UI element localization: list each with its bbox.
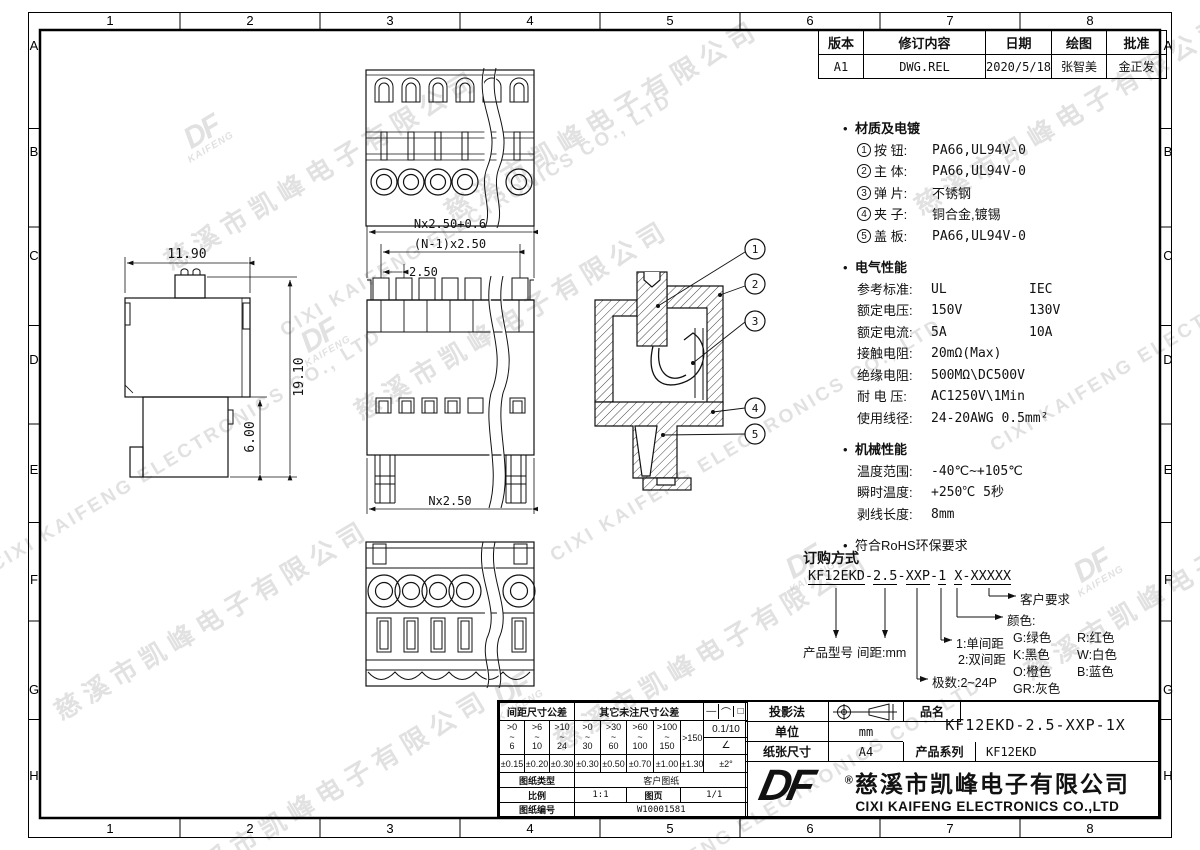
sheet-value: 1/1 bbox=[681, 788, 748, 803]
tol-symbols-cell: — ⌒ □ bbox=[704, 703, 748, 721]
grid-col-label: 7 bbox=[940, 821, 960, 836]
material-item: 1按 钮:PA66,UL94V-0 bbox=[843, 140, 1161, 162]
spec-value2: IEC bbox=[1029, 279, 1052, 301]
unit-label: 单位 bbox=[745, 722, 828, 742]
grid-col-label: 6 bbox=[800, 13, 820, 28]
spec-value: +250℃ 5秒 bbox=[931, 482, 1004, 504]
grid-col-label: 2 bbox=[240, 13, 260, 28]
mechanical-row: 剥线长度:8mm bbox=[843, 504, 1161, 526]
flatness-symbol: — bbox=[704, 706, 718, 717]
spec-label: 温度范围: bbox=[857, 461, 931, 483]
drawing-number-value: W10001581 bbox=[575, 803, 748, 817]
grid-row-label: B bbox=[24, 144, 44, 159]
electrical-row: 使用线径:24-20AWG 0.5mm² bbox=[843, 408, 1161, 430]
mechanical-section: •机械性能 温度范围:-40℃~+105℃ 瞬时温度:+250℃ 5秒 剥线长度… bbox=[843, 439, 1161, 525]
grid-row-label: E bbox=[24, 462, 44, 477]
material-value: PA66,UL94V-0 bbox=[932, 226, 1026, 248]
bullet: • bbox=[843, 257, 855, 279]
dim-pitch: 2.50 bbox=[409, 265, 438, 279]
flatness-value: 0.1/10 bbox=[704, 722, 747, 738]
material-label: 弹 片: bbox=[874, 183, 932, 205]
grid-col-label: 4 bbox=[520, 13, 540, 28]
ordering-section: 订购方式 KF12EKD-2.5-XXP-1X-XXXXX 产品型号 间距:mm… bbox=[795, 548, 1155, 698]
tol-value: ±0.70 bbox=[627, 755, 654, 773]
electrical-row: 绝缘电阻:500MΩ\DC500V bbox=[843, 365, 1161, 387]
projection-symbol-cell bbox=[828, 702, 903, 722]
spec-value: 24-20AWG 0.5mm² bbox=[931, 408, 1048, 430]
material-item: 4夹 子:铜合金,镀锡 bbox=[843, 204, 1161, 226]
spec-notes: •材质及电镀 1按 钮:PA66,UL94V-0 2主 体:PA66,UL94V… bbox=[843, 118, 1161, 567]
grid-col-label: 8 bbox=[1080, 821, 1100, 836]
tol-range: >10 ~ 24 bbox=[550, 721, 575, 755]
material-item: 5盖 板:PA66,UL94V-0 bbox=[843, 226, 1161, 248]
material-label: 盖 板: bbox=[874, 226, 932, 248]
revision-drawn-by: 张智美 bbox=[1052, 55, 1107, 79]
drawing-type-label: 图纸类型 bbox=[500, 773, 575, 788]
spec-value2: 130V bbox=[1029, 300, 1060, 322]
arc-symbol: ⌒ bbox=[718, 704, 733, 719]
material-item: 3弹 片:不锈钢 bbox=[843, 183, 1161, 205]
company-name-cn: 慈溪市凯峰电子有限公司 bbox=[855, 771, 1130, 797]
spec-label: 剥线长度: bbox=[857, 504, 931, 526]
tol-range: >150 bbox=[681, 721, 704, 755]
electrical-section: •电气性能 参考标准:ULIEC 额定电压:150V130V 额定电流:5A10… bbox=[843, 257, 1161, 429]
revision-date: 2020/5/18 bbox=[986, 55, 1052, 79]
title-block-area: 间距尺寸公差 其它未注尺寸公差 — ⌒ □ >0 ~ 6 >6 ~ 10 >10… bbox=[497, 700, 1160, 818]
tol-range: >6 ~ 10 bbox=[525, 721, 550, 755]
tol-range: >0 ~ 30 bbox=[575, 721, 601, 755]
grid-col-label: 5 bbox=[660, 13, 680, 28]
paper-size-label: 纸张尺寸 bbox=[745, 742, 828, 762]
spec-label: 使用线径: bbox=[857, 408, 931, 430]
tol-range: >60 ~ 100 bbox=[627, 721, 654, 755]
revision-table: 版本 修订内容 日期 绘图 批准 A1 DWG.REL 2020/5/18 张智… bbox=[818, 30, 1167, 79]
tol-header-pitch: 间距尺寸公差 bbox=[500, 703, 575, 721]
electrical-row: 接触电阻:20mΩ(Max) bbox=[843, 343, 1161, 365]
material-label: 主 体: bbox=[874, 161, 932, 183]
dim-lower-height: 6.00 bbox=[243, 421, 258, 452]
ordering-color-option: GR:灰色 bbox=[1013, 678, 1060, 697]
grid-row-label: H bbox=[1158, 768, 1178, 783]
company-block: DF ®慈溪市凯峰电子有限公司 CIXI KAIFENG ELECTRONICS… bbox=[745, 762, 1158, 816]
tol-range: >100 ~ 150 bbox=[654, 721, 681, 755]
tol-range: >30 ~ 60 bbox=[601, 721, 627, 755]
grid-col-label: 1 bbox=[100, 821, 120, 836]
grid-row-label: B bbox=[1158, 144, 1178, 159]
spec-value: 150V bbox=[931, 300, 1029, 322]
circled-number: 3 bbox=[857, 186, 871, 200]
scale-value: 1:1 bbox=[575, 788, 627, 803]
spec-value: 500MΩ\DC500V bbox=[931, 365, 1025, 387]
grid-col-label: 3 bbox=[380, 821, 400, 836]
product-series-label: 产品系列 bbox=[903, 742, 975, 762]
ordering-color-option: B:蓝色 bbox=[1077, 661, 1114, 680]
bullet: • bbox=[843, 118, 855, 140]
company-names: ®慈溪市凯峰电子有限公司 CIXI KAIFENG ELECTRONICS CO… bbox=[817, 765, 1158, 814]
title-block: 投影法 单位 mm 纸张尺寸 A4 品名 KF12EKD-2.5-XXP-1X bbox=[745, 702, 1158, 816]
revision-content: DWG.REL bbox=[864, 55, 986, 79]
drawing-type-value: 客户图纸 bbox=[575, 773, 748, 788]
tol-header-other: 其它未注尺寸公差 bbox=[575, 703, 704, 721]
spec-value: 5A bbox=[931, 322, 1029, 344]
tol-value: ±0.50 bbox=[601, 755, 627, 773]
face-view-drawing bbox=[363, 538, 538, 693]
ordering-label-pitch: 间距:mm bbox=[857, 642, 906, 661]
grid-row-label: D bbox=[1158, 352, 1178, 367]
grid-col-label: 1 bbox=[100, 13, 120, 28]
front-view-drawing: Nx2.50+0.6 (N-1)x2.50 2.50 Nx2.50 bbox=[363, 218, 538, 518]
circled-number: 1 bbox=[857, 143, 871, 157]
electrical-row: 耐 电 压:AC1250V\1Min bbox=[843, 386, 1161, 408]
tol-value: ±0.20 bbox=[525, 755, 550, 773]
company-name-en: CIXI KAIFENG ELECTRONICS CO.,LTD bbox=[817, 799, 1158, 814]
ordering-label-model: 产品型号 bbox=[803, 642, 853, 661]
spec-label: 额定电压: bbox=[857, 300, 931, 322]
scale-label: 比例 bbox=[500, 788, 575, 803]
circled-number: 5 bbox=[857, 229, 871, 243]
flatness-angle-cell: 0.1/10 ∠ bbox=[704, 721, 748, 755]
grid-row-label: A bbox=[24, 38, 44, 53]
revision-header-approved: 批准 bbox=[1107, 31, 1167, 55]
spec-value: -40℃~+105℃ bbox=[931, 461, 1023, 483]
ordering-label-poles: 极数:2~24P bbox=[932, 672, 997, 691]
material-item: 2主 体:PA66,UL94V-0 bbox=[843, 161, 1161, 183]
registered-mark: ® bbox=[845, 774, 855, 786]
grid-col-label: 5 bbox=[660, 821, 680, 836]
callout-2: 2 bbox=[752, 278, 759, 291]
material-value: PA66,UL94V-0 bbox=[932, 161, 1026, 183]
grid-col-label: 4 bbox=[520, 821, 540, 836]
projection-label: 投影法 bbox=[745, 702, 828, 722]
spec-label: 额定电流: bbox=[857, 322, 931, 344]
paper-size-value: A4 bbox=[828, 742, 903, 762]
product-name-value: KF12EKD-2.5-XXP-1X bbox=[913, 708, 1158, 742]
top-view-drawing bbox=[363, 58, 538, 230]
ordering-label-customer: 客户要求 bbox=[1020, 589, 1070, 608]
electrical-row: 额定电压:150V130V bbox=[843, 300, 1161, 322]
ordering-label-spacing2: 2:双间距 bbox=[958, 649, 1006, 668]
tol-value: ±0.15 bbox=[500, 755, 525, 773]
grid-row-label: F bbox=[1158, 572, 1178, 587]
revision-version: A1 bbox=[819, 55, 864, 79]
spec-value: 20mΩ(Max) bbox=[931, 343, 1001, 365]
spec-label: 绝缘电阻: bbox=[857, 365, 931, 387]
mechanical-row: 温度范围:-40℃~+105℃ bbox=[843, 461, 1161, 483]
angle-tol-value: ±2° bbox=[704, 755, 748, 773]
grid-row-label: D bbox=[24, 352, 44, 367]
revision-header-content: 修订内容 bbox=[864, 31, 986, 55]
section-view-drawing: 1 2 3 4 5 bbox=[573, 228, 788, 493]
dim-body-width: 11.90 bbox=[167, 247, 206, 262]
tol-value: ±1.30 bbox=[681, 755, 704, 773]
circled-number: 4 bbox=[857, 207, 871, 221]
grid-row-label: E bbox=[1158, 462, 1178, 477]
tol-value: ±0.30 bbox=[550, 755, 575, 773]
spec-label: 接触电阻: bbox=[857, 343, 931, 365]
mechanical-title: 机械性能 bbox=[855, 442, 907, 457]
spec-value: UL bbox=[931, 279, 1029, 301]
material-label: 夹 子: bbox=[874, 204, 932, 226]
callout-4: 4 bbox=[752, 402, 759, 415]
spec-label: 参考标准: bbox=[857, 279, 931, 301]
grid-col-label: 2 bbox=[240, 821, 260, 836]
revision-header-version: 版本 bbox=[819, 31, 864, 55]
dim-pitch-total: Nx2.50+0.6 bbox=[414, 218, 486, 231]
electrical-title: 电气性能 bbox=[855, 260, 907, 275]
grid-col-label: 6 bbox=[800, 821, 820, 836]
material-value: 铜合金,镀锡 bbox=[932, 204, 1001, 226]
tol-value: ±0.30 bbox=[575, 755, 601, 773]
grid-col-label: 8 bbox=[1080, 13, 1100, 28]
callout-3: 3 bbox=[752, 315, 759, 328]
spec-value2: 10A bbox=[1029, 322, 1052, 344]
bullet: • bbox=[843, 439, 855, 461]
tol-value: ±1.00 bbox=[654, 755, 681, 773]
spec-label: 瞬时温度: bbox=[857, 482, 931, 504]
callout-1: 1 bbox=[752, 243, 759, 256]
grid-col-label: 3 bbox=[380, 13, 400, 28]
grid-col-label: 7 bbox=[940, 13, 960, 28]
material-value: 不锈钢 bbox=[932, 183, 971, 205]
tolerance-table: 间距尺寸公差 其它未注尺寸公差 — ⌒ □ >0 ~ 6 >6 ~ 10 >10… bbox=[499, 702, 748, 817]
dim-pitch-minus1: (N-1)x2.50 bbox=[414, 237, 486, 251]
grid-row-label: G bbox=[24, 682, 44, 697]
spec-value: AC1250V\1Min bbox=[931, 386, 1025, 408]
engineering-drawing-page: 慈溪市凯峰电子有限公司 CIXI KAIFENG ELECTRONICS CO.… bbox=[0, 0, 1200, 850]
revision-approved-by: 金正发 bbox=[1107, 55, 1167, 79]
revision-header-drawn: 绘图 bbox=[1052, 31, 1107, 55]
electrical-row: 参考标准:ULIEC bbox=[843, 279, 1161, 301]
grid-row-label: H bbox=[24, 768, 44, 783]
company-logo: DF bbox=[756, 766, 815, 806]
electrical-row: 额定电流:5A10A bbox=[843, 322, 1161, 344]
mechanical-row: 瞬时温度:+250℃ 5秒 bbox=[843, 482, 1161, 504]
revision-header-date: 日期 bbox=[986, 31, 1052, 55]
grid-row-label: C bbox=[24, 248, 44, 263]
spec-label: 耐 电 压: bbox=[857, 386, 931, 408]
grid-row-label: F bbox=[24, 572, 44, 587]
callout-5: 5 bbox=[752, 428, 759, 441]
sheet-label: 图页 bbox=[627, 788, 681, 803]
tol-range: >0 ~ 6 bbox=[500, 721, 525, 755]
spec-value: 8mm bbox=[931, 504, 954, 526]
material-title: 材质及电镀 bbox=[855, 121, 920, 136]
product-series-value: KF12EKD bbox=[975, 742, 1158, 762]
unit-value: mm bbox=[828, 722, 903, 742]
dim-body-height: 19.10 bbox=[292, 357, 307, 396]
material-label: 按 钮: bbox=[874, 140, 932, 162]
material-value: PA66,UL94V-0 bbox=[932, 140, 1026, 162]
material-section: •材质及电镀 1按 钮:PA66,UL94V-0 2主 体:PA66,UL94V… bbox=[843, 118, 1161, 247]
angle-symbol: ∠ bbox=[704, 738, 747, 754]
grid-row-label: G bbox=[1158, 682, 1178, 697]
grid-row-label: C bbox=[1158, 248, 1178, 263]
side-view-drawing: 11.90 19.10 6.00 bbox=[105, 225, 315, 495]
first-angle-projection-icon bbox=[831, 703, 901, 721]
circled-number: 2 bbox=[857, 164, 871, 178]
dim-bottom-total: Nx2.50 bbox=[428, 494, 471, 508]
drawing-number-label: 图纸编号 bbox=[500, 803, 575, 817]
